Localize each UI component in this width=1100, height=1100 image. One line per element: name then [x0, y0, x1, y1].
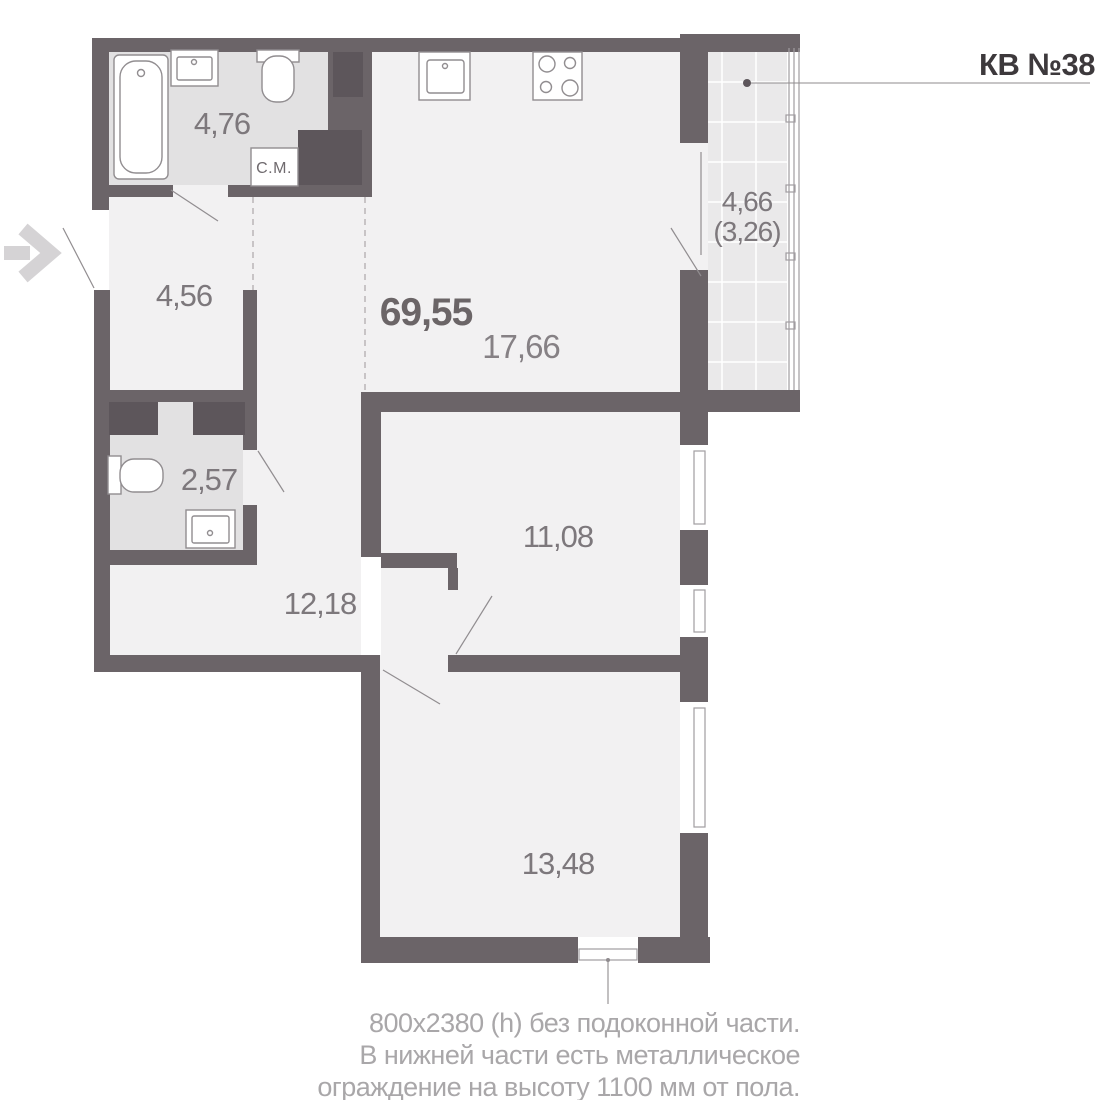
wall-segment: [361, 392, 708, 412]
window-note-callout: [606, 958, 610, 1004]
wall-segment: [448, 568, 458, 590]
washing-machine-label: С.М.: [256, 160, 292, 177]
room-2-area-label: 13,48: [522, 846, 595, 881]
callout-dot: [606, 958, 610, 962]
wall-segment: [680, 833, 708, 963]
entry-hall-floor: [109, 197, 372, 392]
wall-segment: [680, 530, 708, 585]
window-note: 800х2380 (h) без подоконной части. В ниж…: [317, 1008, 800, 1100]
wall-segment: [680, 637, 708, 702]
washing-machine-icon: С.М.: [251, 148, 298, 186]
wall-segment: [381, 553, 457, 568]
wall-segment: [361, 672, 380, 937]
wc-area-label: 2,57: [181, 462, 237, 497]
wc-sink-icon: [186, 510, 235, 548]
bathroom-sink-icon: [171, 50, 218, 86]
balcony-area-label: 4,66: [722, 186, 773, 217]
floor-plan-drawing: С.М. КВ №38 4,76 4,56 69,55 17,66 4: [0, 0, 1100, 1100]
balcony-glazing-icon: [786, 48, 799, 390]
wall-segment: [243, 290, 257, 450]
window-note-line-3: ограждение на высоту 1100 мм от пола.: [317, 1072, 800, 1100]
kitchen-living-area-label: 17,66: [482, 328, 560, 365]
wall-segment: [680, 38, 708, 143]
ventilation-shaft-icon: [298, 130, 362, 185]
callout-dot: [743, 79, 751, 87]
wc-doorway-floor: [243, 450, 257, 505]
ventilation-shaft-icon: [333, 52, 363, 97]
room-1-area-label: 11,08: [523, 519, 593, 554]
window-note-line-1: 800х2380 (h) без подоконной части.: [369, 1008, 800, 1038]
entry-door-swing: [63, 228, 94, 288]
ventilation-shaft-icon: [109, 402, 158, 435]
bathroom-doorway-floor: [173, 185, 228, 197]
wall-segment: [361, 937, 578, 963]
balcony-doorway-floor: [680, 143, 708, 270]
window-icon: [680, 585, 708, 637]
wall-segment: [680, 270, 708, 445]
bathroom-area-label: 4,76: [194, 106, 250, 141]
wall-segment: [92, 38, 109, 210]
wall-segment: [448, 655, 708, 672]
window-icon: [680, 445, 708, 530]
wall-segment: [94, 655, 380, 672]
room-2-doorway-floor: [380, 655, 448, 672]
ventilation-shaft-icon: [193, 402, 245, 435]
wall-segment: [109, 185, 173, 197]
window-note-line-2: В нижней части есть металлическое: [359, 1040, 800, 1070]
wall-segment: [361, 412, 381, 557]
toilet-icon: [257, 50, 299, 102]
floor-plan-page: С.М. КВ №38 4,76 4,56 69,55 17,66 4: [0, 0, 1100, 1100]
wall-segment: [94, 550, 257, 565]
kitchen-sink-icon: [419, 52, 470, 100]
wc-toilet-icon: [108, 456, 163, 494]
bathtub-icon: [114, 55, 168, 179]
entrance-arrow-icon: [4, 229, 51, 277]
wall-segment: [708, 390, 800, 412]
wall-segment: [108, 390, 245, 402]
apartment-number-label: КВ №38: [979, 47, 1095, 82]
balcony-coeff-area-label: (3,26): [713, 216, 780, 247]
entry-hall-area-label: 4,56: [156, 278, 212, 313]
stove-icon: [533, 52, 582, 100]
room-2-floor: [380, 672, 680, 937]
window-icon: [680, 702, 708, 833]
total-area-label: 69,55: [380, 291, 473, 334]
hallway-area-label: 12,18: [284, 586, 357, 621]
